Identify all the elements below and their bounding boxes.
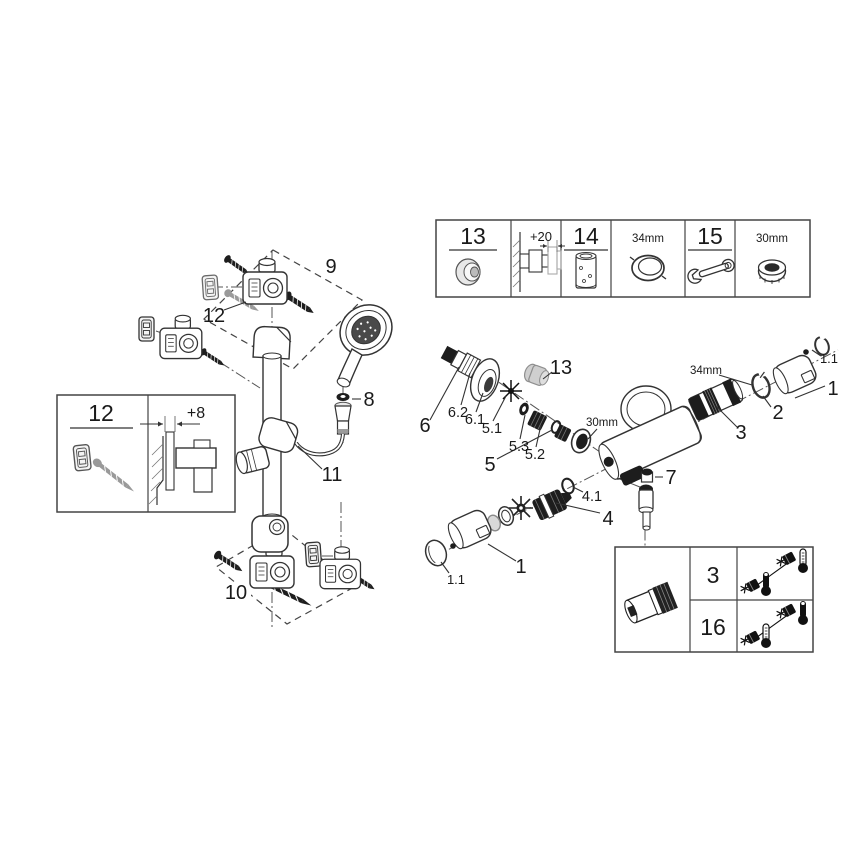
wall-plug-top <box>202 275 219 300</box>
callout-1-1-top: 1.1 <box>820 351 838 366</box>
wall-detail-box: 12 +8 <box>57 395 235 512</box>
handle-cap-1-1-bottom <box>422 537 450 568</box>
diverter-4 <box>531 484 576 522</box>
cap-13 <box>522 362 551 387</box>
washer-8-hole <box>340 395 345 398</box>
callout-4: 4 <box>602 508 613 530</box>
stop-ring-34-icon <box>630 256 666 281</box>
callout-12: 12 <box>203 305 225 327</box>
top-box-size-30: 30mm <box>756 233 788 245</box>
cartridge-temp-box: 3 16 <box>615 547 813 652</box>
screw-left-bracket <box>199 347 226 369</box>
callout-1-bottom: 1 <box>515 556 526 578</box>
wall-plug-bottom <box>305 542 322 567</box>
wall-box-item-12: 12 <box>88 400 114 426</box>
hose-connector <box>335 402 351 434</box>
callout-13-mixer: 13 <box>550 357 572 379</box>
plug-7 <box>642 469 653 483</box>
callout-5-1: 5.1 <box>482 421 502 437</box>
callout-10: 10 <box>225 582 247 604</box>
callout-11: 11 <box>322 464 343 486</box>
wall-box-dim-8: +8 <box>187 405 205 422</box>
wall-box-plug-icon <box>73 444 91 471</box>
top-parts-box: 13 +20 14 <box>436 220 810 297</box>
rail-bottom-elbow <box>252 516 288 552</box>
bracket-top <box>243 259 287 305</box>
rail-tube-top-cap <box>263 353 281 359</box>
grommet-icon <box>456 259 480 285</box>
thermostat-mixer-assembly <box>422 333 831 568</box>
top-box-item-14: 14 <box>573 223 599 249</box>
callout-1-top: 1 <box>827 378 838 400</box>
callout-8: 8 <box>363 389 374 411</box>
stop-ring-2 <box>749 370 774 400</box>
callout-5-2: 5.2 <box>525 447 545 463</box>
callout-7: 7 <box>665 467 676 489</box>
bracket-left <box>160 315 202 358</box>
size-34mm: 34mm <box>690 365 722 377</box>
parts-diagram-page: 9 12 8 11 10 6 6.2 6.1 5.1 5.3 5.2 5 13 … <box>0 0 868 868</box>
top-box-item-15: 15 <box>697 223 723 249</box>
temperature-handle-1 <box>770 353 819 397</box>
filter-star-5-1 <box>500 380 522 402</box>
cap-screw-top <box>803 349 809 355</box>
o-ring-5-3 <box>518 401 531 416</box>
top-box-item-13: 13 <box>460 223 486 249</box>
callout-1-1-bottom: 1.1 <box>447 572 465 587</box>
extension-sleeve-icon <box>576 253 596 289</box>
wall-plug-left <box>139 317 154 341</box>
cap-screw-bottom <box>450 543 456 549</box>
o-ring-4-1 <box>560 477 575 495</box>
union-nut-30 <box>568 427 593 456</box>
bracket-bottom-right <box>320 547 360 589</box>
callout-2: 2 <box>772 402 783 424</box>
exploded-parts-drawing: 9 12 8 11 10 6 6.2 6.1 5.1 5.3 5.2 5 13 … <box>0 0 868 868</box>
callout-9: 9 <box>325 256 336 278</box>
top-box-size-34: 34mm <box>632 233 664 245</box>
shower-outlet <box>639 485 653 531</box>
check-valve-5-2 <box>527 410 547 431</box>
callout-4-1: 4.1 <box>582 489 602 505</box>
callout-6: 6 <box>419 415 430 437</box>
temp-box-row-3: 3 <box>707 562 720 588</box>
thermostat-cartridge-3 <box>688 377 746 422</box>
callout-5: 5 <box>484 454 495 476</box>
callout-3: 3 <box>735 422 746 444</box>
valve-insert <box>554 424 572 442</box>
hand-shower <box>330 294 402 388</box>
temp-box-row-16: 16 <box>700 614 726 640</box>
top-box-dim-20: +20 <box>530 229 552 244</box>
size-30mm: 30mm <box>586 417 618 429</box>
